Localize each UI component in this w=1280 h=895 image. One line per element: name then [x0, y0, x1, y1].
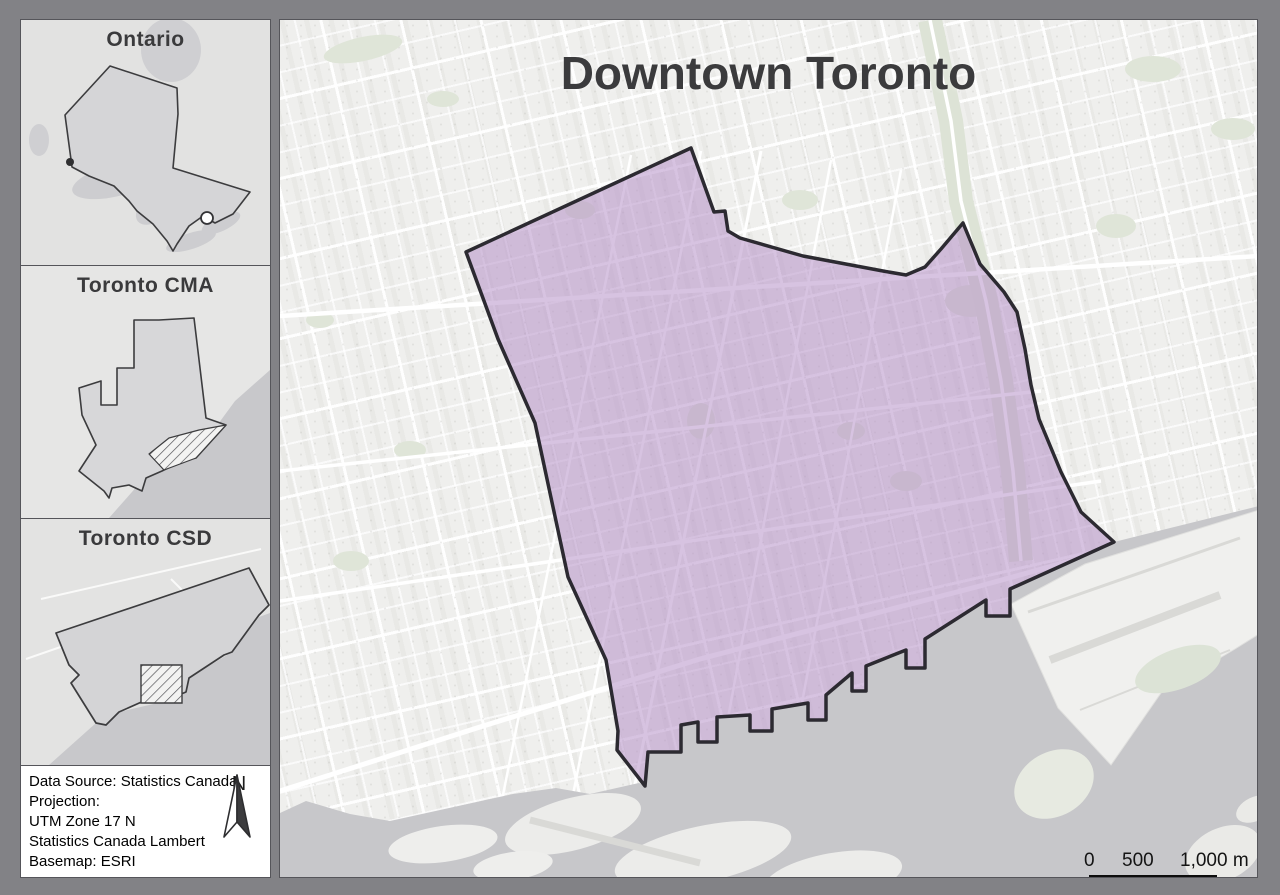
toronto-location-marker: [201, 212, 213, 224]
inset-map-toronto-cma: Toronto CMA: [20, 265, 271, 519]
north-arrow: N: [222, 774, 256, 795]
scale-bar: 0 500 1,000 m: [1080, 850, 1250, 878]
credits-line-utm: UTM Zone 17 N: [29, 812, 229, 832]
credits-text: Data Source: Statistics Canada Projectio…: [29, 772, 229, 872]
cma-inset-canvas: [21, 266, 270, 518]
credits-line-lambert: Statistics Canada Lambert: [29, 832, 229, 852]
credits-line-basemap: Basemap: ESRI: [29, 852, 229, 872]
map-credits-box: Data Source: Statistics Canada Projectio…: [20, 765, 271, 878]
scale-label-1000m: 1,000 m: [1180, 850, 1249, 872]
csd-downtown-hatched-area: [141, 665, 182, 703]
scale-bar-graphic: [1089, 875, 1217, 878]
north-arrow-icon: [222, 774, 252, 838]
ontario-inset-canvas: [21, 20, 270, 265]
csd-inset-canvas: [21, 519, 270, 765]
inset-title-ontario: Ontario: [21, 28, 270, 52]
lake-of-the-woods-mark: [66, 158, 74, 166]
inset-map-ontario: Ontario: [20, 19, 271, 266]
map-title: Downtown Toronto: [280, 46, 1257, 100]
main-map-canvas: [280, 20, 1258, 878]
credits-line-data-source: Data Source: Statistics Canada: [29, 772, 229, 792]
scale-label-0: 0: [1084, 850, 1095, 872]
scale-label-500: 500: [1122, 850, 1154, 872]
credits-line-projection: Projection:: [29, 792, 229, 812]
scale-bar-filled-segment: [1091, 877, 1153, 878]
inset-title-toronto-csd: Toronto CSD: [21, 527, 270, 551]
west-lake-water: [29, 124, 49, 156]
inset-map-toronto-csd: Toronto CSD: [20, 518, 271, 766]
inset-title-toronto-cma: Toronto CMA: [21, 274, 270, 298]
scale-bar-labels: 0 500 1,000 m: [1080, 850, 1250, 872]
map-layout-canvas: { "main_map": { "title": "Downtown Toron…: [0, 0, 1280, 895]
main-map-downtown-toronto: Downtown Toronto 0 500 1,000 m: [279, 19, 1258, 878]
